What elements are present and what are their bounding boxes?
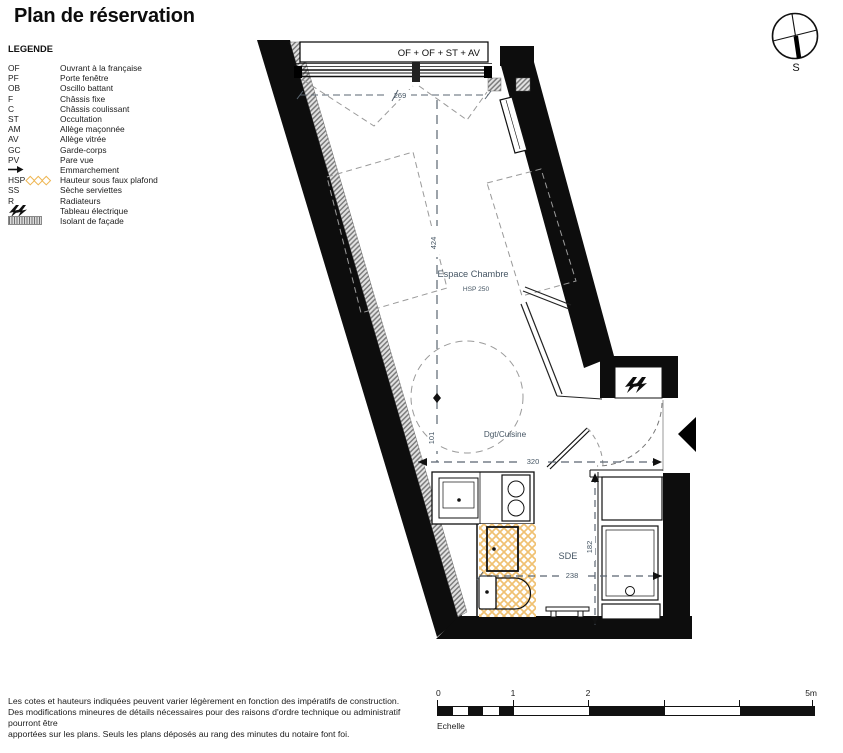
lightning-icon [8,205,60,217]
scale-bar-strip [437,706,815,716]
bench [546,607,589,617]
legend-label: Châssis coulissant [60,104,129,114]
compass-rose: S [765,6,827,74]
legend-label: Allège vitrée [60,134,106,144]
legend-item-c: CChâssis coulissant [8,104,238,114]
reservation-plan-page: { "title": "Plan de réservation", "legen… [0,0,843,753]
disclaimer-line: Les cotes et hauteurs indiquées peuvent … [8,696,428,707]
sde-door [547,428,603,469]
entrance-arrow-icon [678,417,696,452]
legend-item-av: AVAllège vitrée [8,134,238,144]
legend-item-tableau: Tableau électrique [8,206,238,216]
legend-item-st: STOccultation [8,114,238,124]
legend-item-ob: OBOscillo battant [8,83,238,93]
scale-tick-label: 1 [511,688,516,698]
scale-tick-label: 0 [436,688,441,698]
legend-code: F [8,94,60,104]
legend-code: C [8,104,60,114]
legend-label: Tableau électrique [60,206,128,216]
window-type-label: OF + OF + ST + AV [398,48,481,59]
legend-label: Porte fenêtre [60,73,108,83]
legend-item-emmarchement: Emmarchement [8,165,238,175]
dim-window-width: 269 [394,91,407,100]
room-label-chambre-hsp: HSP 250 [463,286,490,293]
legend-item-ss: SSSèche serviettes [8,185,238,195]
legend-label: Châssis fixe [60,94,105,104]
legend-code: AV [8,134,60,144]
dim-sde-depth: 182 [585,541,594,554]
legend-code: SS [8,185,60,195]
legend-code: ST [8,114,60,124]
legend-label: Allège maçonnée [60,124,125,134]
facade-insulation-icon [8,216,60,225]
legend-item-pv: PVPare vue [8,155,238,165]
legend-label: Ouvrant à la française [60,63,142,73]
legend-label: Sèche serviettes [60,185,122,195]
legend-code: OB [8,83,60,93]
legend-label: Garde-corps [60,145,107,155]
disclaimer: Les cotes et hauteurs indiquées peuvent … [8,696,428,740]
kitchen-block [432,472,534,524]
room-label-chambre: Espace Chambre [438,269,509,279]
legend-label: Occultation [60,114,102,124]
threshold-step [590,470,663,477]
room-label-cuisine: Dgt/Cuisine [484,430,527,439]
window-assembly: OF + OF + ST + AV [294,42,492,82]
window-swing-lines [303,80,487,126]
scale-tick-label: 5m [805,688,817,698]
legend-code: PV [8,155,60,165]
compass-south-label: S [792,62,799,74]
dim-sde-width: 238 [566,571,579,580]
entrance-door-swing [597,403,662,466]
scale-tick-label: 2 [586,688,591,698]
legend-item-am: AMAllège maçonnée [8,124,238,134]
legend-item-of: OFOuvrant à la française [8,63,238,73]
legend-item-isolant: Isolant de façade [8,216,238,226]
room-label-sde: SDE [559,551,578,561]
legend-code: PF [8,73,60,83]
wet-area [477,524,536,617]
legend-item-hsp: HSP Hauteur sous faux plafond [8,175,238,185]
diamond-hatch-icon [25,175,49,185]
legend-item-gc: GCGarde-corps [8,145,238,155]
arrow-right-icon [8,165,60,174]
legend-heading: LEGENDE [8,44,238,54]
legend-code: HSP [8,175,25,185]
disclaimer-line: apportées sur les plans. Seuls les plans… [8,729,428,740]
sanitary-units [546,472,662,619]
disclaimer-line: Des modifications mineures de détails né… [8,707,428,729]
dim-circle-offset: 101 [427,432,436,445]
legend-label: Emmarchement [60,165,119,175]
kitchen-sink [439,478,478,518]
legend-label: Hauteur sous faux plafond [60,175,158,185]
scale-bar: 0 1 2 5m Echelle [437,688,815,732]
south-needle [796,36,799,58]
legend-code: AM [8,124,60,134]
legend-item-f: FChâssis fixe [8,94,238,104]
dim-chambre-length: 424 [429,237,438,250]
page-title: Plan de réservation [14,5,195,28]
legend: LEGENDE OFOuvrant à la française PFPorte… [8,44,238,226]
legend-label: Pare vue [60,155,94,165]
legend-code: OF [8,63,60,73]
legend-label: Isolant de façade [60,216,124,226]
legend-item-pf: PFPorte fenêtre [8,73,238,83]
legend-label: Radiateurs [60,196,101,206]
scale-caption: Echelle [437,721,465,731]
cooktop [502,475,530,521]
legend-label: Oscillo battant [60,83,113,93]
dim-cuisine-width: 320 [527,457,540,466]
legend-code: GC [8,145,60,155]
